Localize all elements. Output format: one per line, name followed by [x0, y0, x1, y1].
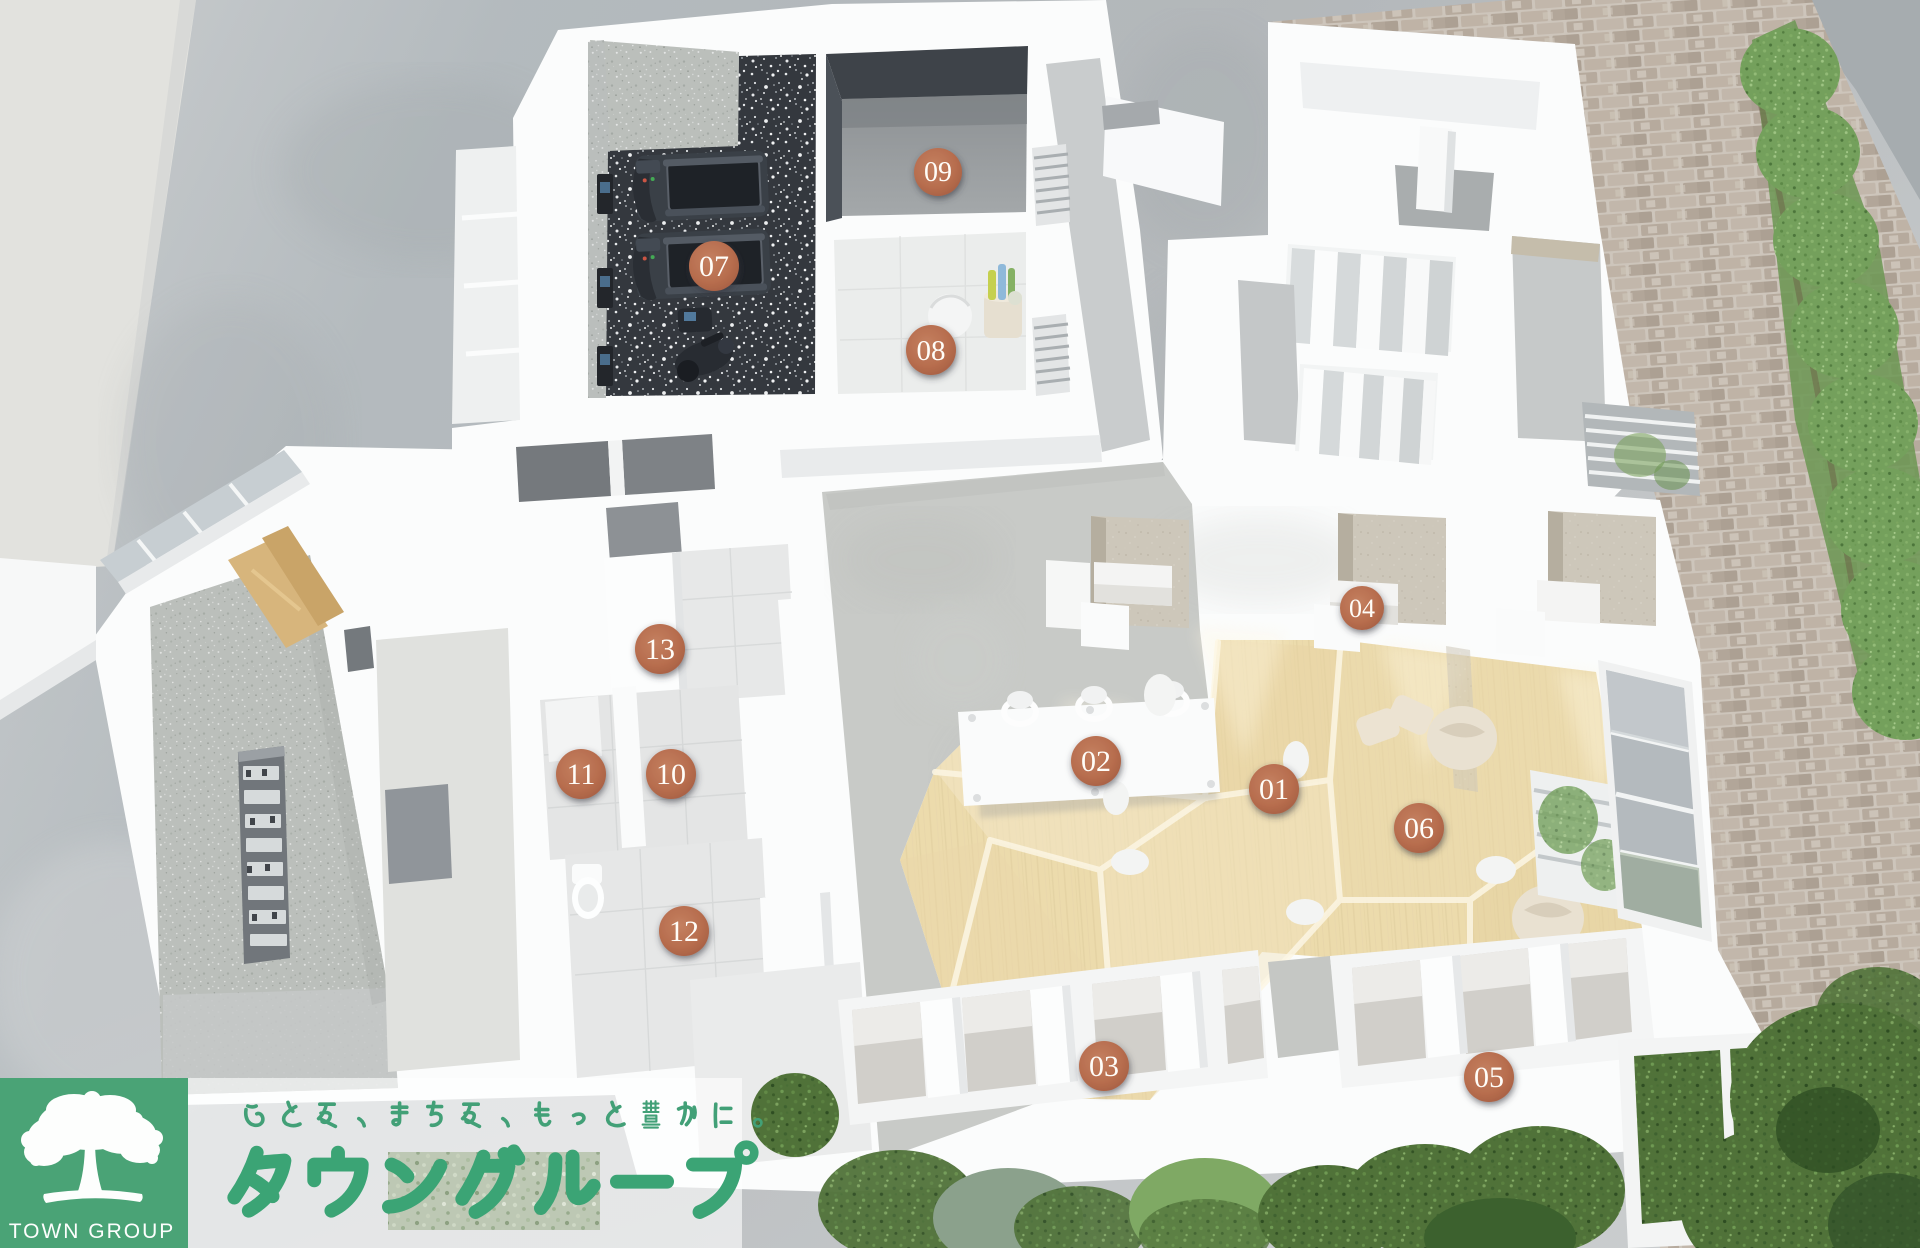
svg-text:09: 09: [924, 157, 952, 188]
svg-text:06: 06: [1404, 812, 1434, 845]
svg-text:11: 11: [567, 758, 596, 791]
svg-text:12: 12: [669, 915, 699, 948]
svg-text:01: 01: [1259, 773, 1289, 806]
svg-text:13: 13: [645, 633, 675, 666]
svg-text:TOWN GROUP: TOWN GROUP: [9, 1220, 176, 1243]
svg-text:04: 04: [1349, 594, 1375, 623]
svg-text:10: 10: [656, 758, 686, 791]
svg-text:02: 02: [1081, 745, 1111, 778]
svg-text:03: 03: [1089, 1050, 1119, 1083]
svg-text:08: 08: [917, 335, 946, 367]
svg-text:07: 07: [699, 250, 729, 283]
svg-text:05: 05: [1474, 1061, 1504, 1094]
